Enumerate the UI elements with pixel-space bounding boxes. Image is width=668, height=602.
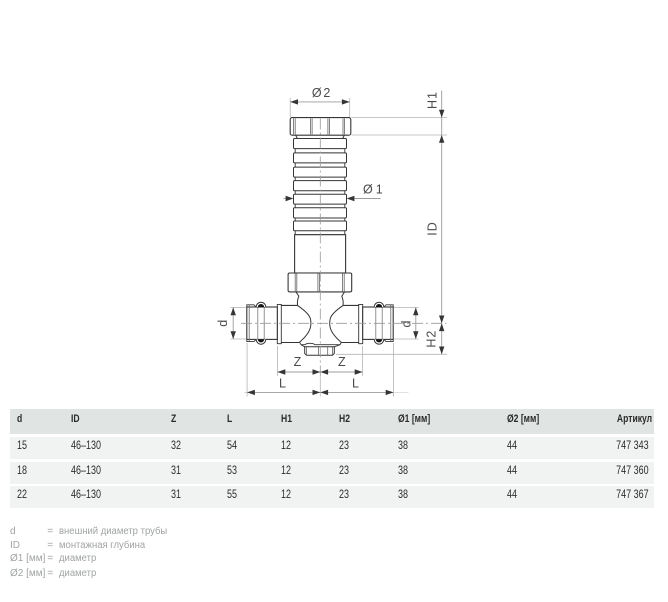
svg-text:L: L bbox=[352, 377, 359, 391]
svg-text:L: L bbox=[279, 377, 286, 391]
svg-text:d: d bbox=[399, 320, 413, 327]
svg-text:Z: Z bbox=[338, 355, 346, 369]
svg-text:Ø1: Ø1 bbox=[363, 182, 386, 196]
svg-text:ID: ID bbox=[426, 221, 440, 236]
svg-text:d: d bbox=[216, 320, 230, 327]
svg-text:Z: Z bbox=[294, 355, 302, 369]
svg-text:H1: H1 bbox=[426, 91, 440, 109]
svg-text:Ø2: Ø2 bbox=[312, 86, 332, 100]
svg-text:H2: H2 bbox=[425, 330, 439, 348]
